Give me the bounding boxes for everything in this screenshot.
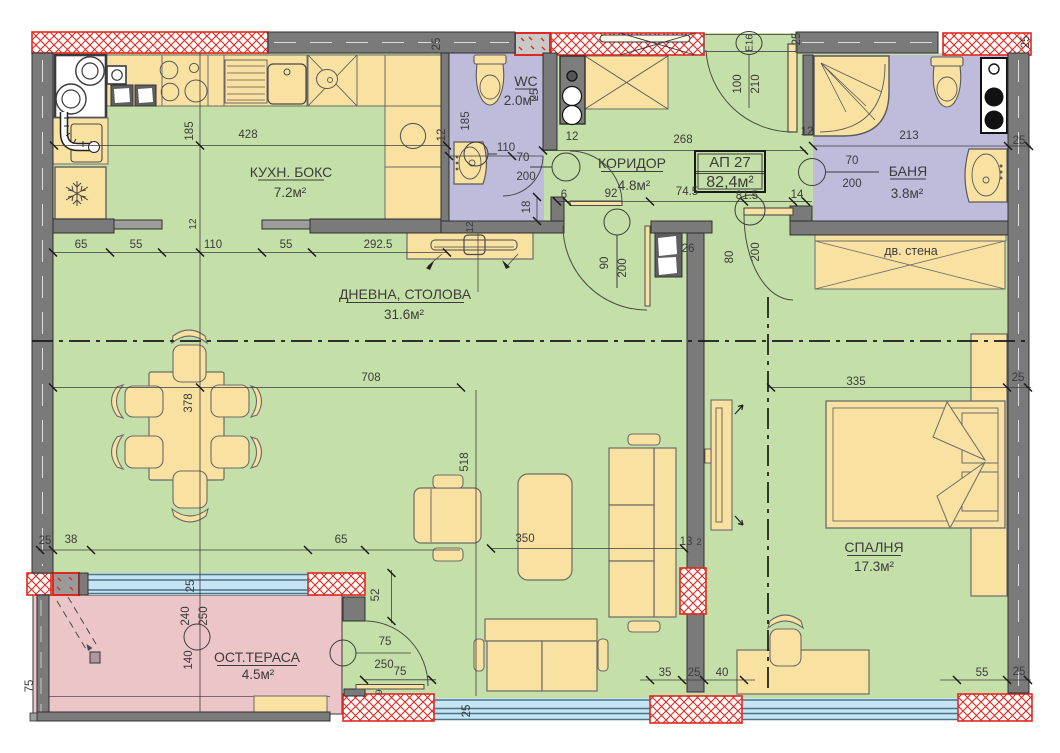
svg-text:КОРИДОР: КОРИДОР — [598, 155, 666, 171]
svg-text:WC: WC — [514, 73, 537, 89]
svg-text:185: 185 — [184, 121, 196, 140]
svg-text:74.5: 74.5 — [676, 186, 698, 198]
svg-text:82,4м²: 82,4м² — [706, 174, 754, 191]
svg-text:140: 140 — [183, 650, 195, 669]
svg-text:110: 110 — [204, 239, 222, 251]
svg-text:Е16: Е16 — [745, 34, 756, 52]
svg-text:81.5: 81.5 — [736, 190, 758, 202]
svg-text:52: 52 — [370, 589, 382, 602]
svg-text:АП 27: АП 27 — [709, 154, 750, 171]
svg-text:75: 75 — [379, 636, 392, 648]
svg-text:25: 25 — [1020, 36, 1032, 49]
svg-text:210: 210 — [750, 74, 762, 93]
svg-text:518: 518 — [459, 452, 471, 471]
svg-text:17.3м²: 17.3м² — [854, 559, 895, 574]
svg-text:428: 428 — [238, 129, 257, 141]
svg-text:4.8м²: 4.8м² — [618, 178, 651, 193]
svg-text:38: 38 — [65, 534, 78, 546]
svg-text:213: 213 — [899, 130, 918, 142]
svg-text:335: 335 — [846, 376, 865, 388]
svg-text:55: 55 — [280, 239, 293, 251]
svg-text:240: 240 — [180, 606, 192, 625]
svg-text:40: 40 — [716, 667, 729, 679]
svg-text:7.2м²: 7.2м² — [274, 185, 307, 200]
svg-text:110: 110 — [497, 142, 515, 154]
svg-text:75: 75 — [394, 666, 407, 678]
svg-text:13: 13 — [680, 536, 693, 548]
svg-text:75: 75 — [24, 680, 36, 693]
svg-text:25: 25 — [39, 535, 52, 547]
svg-text:25: 25 — [1013, 135, 1026, 147]
svg-text:200: 200 — [842, 178, 861, 190]
svg-text:25: 25 — [461, 705, 473, 718]
svg-text:12: 12 — [465, 221, 476, 233]
svg-text:378: 378 — [183, 393, 195, 412]
svg-text:ДНЕВНА, СТОЛОВА: ДНЕВНА, СТОЛОВА — [339, 286, 472, 302]
svg-text:70: 70 — [517, 152, 530, 164]
svg-text:708: 708 — [361, 372, 380, 384]
svg-text:18: 18 — [521, 201, 533, 214]
svg-text:100: 100 — [732, 74, 744, 93]
svg-text:4.5м²: 4.5м² — [242, 667, 275, 682]
svg-text:12: 12 — [436, 129, 448, 142]
svg-text:25: 25 — [529, 89, 541, 102]
svg-text:25: 25 — [1013, 666, 1026, 678]
svg-text:55: 55 — [130, 239, 143, 251]
svg-text:200: 200 — [617, 258, 629, 277]
svg-text:14: 14 — [791, 189, 804, 201]
svg-text:55: 55 — [976, 667, 989, 679]
svg-text:70: 70 — [846, 155, 859, 167]
svg-text:25: 25 — [688, 667, 701, 679]
svg-text:65: 65 — [75, 239, 88, 251]
svg-text:250: 250 — [374, 659, 393, 671]
svg-text:2: 2 — [696, 537, 701, 547]
svg-text:250: 250 — [198, 606, 210, 625]
svg-text:200: 200 — [516, 171, 535, 183]
svg-text:ОСТ.ТЕРАСА: ОСТ.ТЕРАСА — [214, 649, 301, 665]
svg-text:35: 35 — [659, 667, 672, 679]
svg-text:12: 12 — [801, 126, 814, 138]
svg-text:дв. стена: дв. стена — [884, 244, 938, 258]
svg-text:25: 25 — [185, 580, 197, 593]
svg-text:12: 12 — [188, 218, 199, 230]
svg-text:31.6м²: 31.6м² — [384, 307, 425, 322]
svg-text:БАНЯ: БАНЯ — [889, 163, 927, 179]
svg-text:268: 268 — [673, 134, 692, 146]
svg-text:65: 65 — [335, 534, 348, 546]
svg-text:25: 25 — [791, 33, 803, 46]
svg-text:6: 6 — [561, 189, 567, 201]
svg-text:90: 90 — [599, 257, 611, 270]
svg-text:3.8м²: 3.8м² — [891, 186, 924, 201]
svg-text:12: 12 — [566, 131, 579, 143]
svg-text:25: 25 — [431, 38, 443, 51]
svg-text:СПАЛНЯ: СПАЛНЯ — [844, 539, 903, 555]
svg-text:9: 9 — [374, 689, 384, 694]
svg-text:292.5: 292.5 — [364, 239, 393, 251]
svg-text:185: 185 — [460, 111, 472, 130]
svg-text:КУХН. БОКС: КУХН. БОКС — [250, 164, 332, 180]
svg-text:80: 80 — [724, 251, 736, 264]
svg-text:25: 25 — [1012, 372, 1025, 384]
svg-text:350: 350 — [515, 533, 534, 545]
svg-text:200: 200 — [750, 242, 762, 261]
svg-text:26: 26 — [682, 243, 695, 255]
svg-text:92: 92 — [605, 188, 618, 200]
